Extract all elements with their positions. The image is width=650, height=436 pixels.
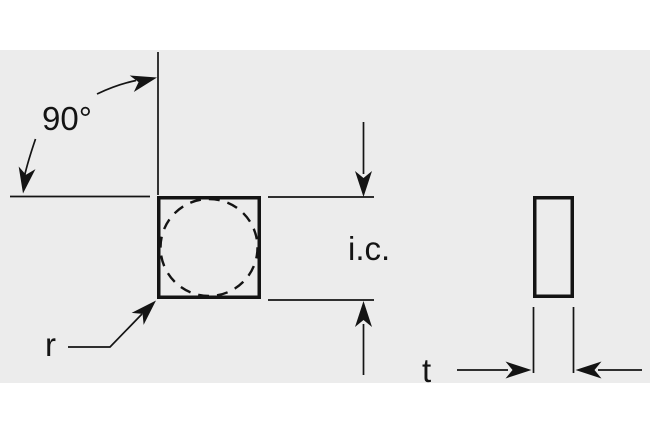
drawing-page: 90° i.c. r t	[0, 0, 650, 436]
inscribed-circle-label: i.c.	[348, 230, 390, 267]
corner-radius-label: r	[45, 326, 56, 363]
angle-label: 90°	[42, 100, 92, 137]
drawing-canvas	[0, 50, 650, 383]
technical-diagram: 90° i.c. r t	[0, 0, 650, 436]
thickness-label: t	[422, 352, 431, 389]
